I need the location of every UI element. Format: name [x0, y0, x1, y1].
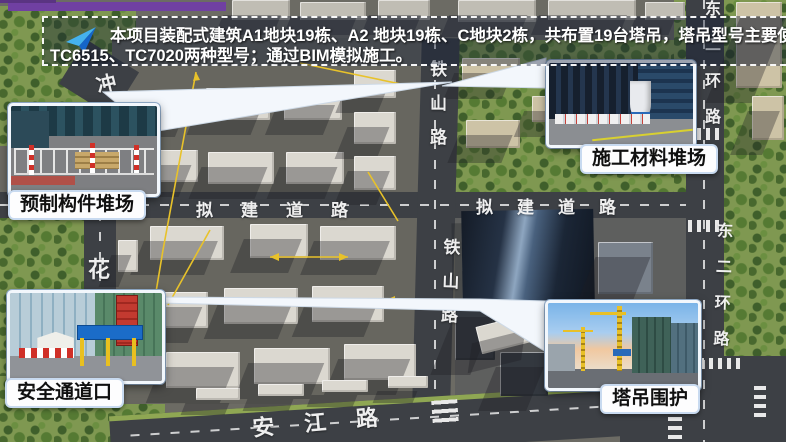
banner-text-line2: TC6515、TC7020两种型号；通过BIM模拟施工。 — [50, 42, 412, 66]
construction-site-overview: 铁山路 铁山路 拟建道路 拟建道路 东二环路 东二环路 花 冲 安江路 预制构件… — [0, 0, 786, 442]
steel-hall-building — [461, 209, 595, 303]
inset-material-stack — [75, 152, 119, 170]
road-name-proposed-west: 拟建道路 — [196, 196, 376, 221]
building-block — [320, 226, 396, 260]
inset-glass-building — [671, 323, 698, 372]
inset-canopy-leg — [80, 338, 84, 366]
building-block — [354, 70, 396, 98]
inset-striped-post — [90, 143, 95, 173]
inset-fence — [555, 114, 650, 125]
label-precast-yard: 预制构件堆场 — [8, 190, 146, 220]
inset-striped-post — [29, 145, 34, 175]
inset-glass-building — [632, 317, 671, 373]
inset-barrier — [19, 348, 74, 359]
crosswalk — [431, 399, 459, 425]
inset-precast-yard-photo — [8, 103, 160, 197]
inset-canopy-leg — [106, 338, 110, 366]
inset-canopy-leg — [132, 338, 136, 366]
inset-crane-mast — [617, 306, 622, 371]
building-block — [166, 352, 240, 388]
label-material-yard: 施工材料堆场 — [580, 144, 718, 174]
building-block — [224, 288, 298, 324]
purple-top-bar — [8, 2, 226, 11]
label-safety-gate: 安全通道口 — [5, 378, 124, 408]
building-block — [284, 90, 342, 120]
inset-crane-guard-photo — [545, 300, 701, 391]
building-block — [466, 120, 520, 148]
crosswalk — [754, 386, 766, 422]
purple-top-sliver — [0, 0, 56, 3]
building-block — [312, 286, 384, 322]
inset-red-walkway — [11, 176, 75, 185]
building-block — [254, 348, 330, 384]
inset-striped-post — [134, 145, 139, 173]
building-block — [208, 152, 274, 184]
building-block — [258, 384, 304, 396]
road-name-proposed-east: 拟建道路 — [476, 193, 640, 218]
building-block — [752, 96, 784, 140]
building-block — [118, 240, 138, 272]
road-name-tieshan-south: 铁山路 — [434, 238, 463, 341]
building-block — [354, 156, 396, 190]
road-name-tieshan-north: 铁山路 — [424, 60, 449, 162]
building-block — [250, 224, 308, 258]
inset-safety-gate-photo — [7, 290, 165, 384]
road-name-hua: 花 — [88, 252, 110, 284]
inset-material-yard-photo — [546, 60, 696, 148]
building-block — [354, 112, 396, 144]
inset-crane-jib — [590, 312, 626, 315]
building-block — [150, 226, 224, 260]
building-block — [344, 344, 416, 380]
building-block — [322, 380, 368, 392]
inset-building-left — [11, 111, 49, 148]
inset-crane-cab — [613, 349, 631, 356]
building-block — [388, 376, 428, 388]
building-block — [598, 242, 653, 294]
label-crane-guard: 塔吊围护 — [600, 384, 700, 414]
building-block — [206, 88, 270, 120]
title-banner: 本项目装配式建筑A1地块19栋、A2 地块19栋、C地块2栋，共布置19台塔吊，… — [42, 16, 786, 66]
inset-crane-mast — [581, 327, 585, 371]
road-name-ring-south: 东二环路 — [705, 222, 734, 367]
inset-crane-jib — [563, 330, 593, 332]
building-block — [196, 388, 240, 400]
inset-low-buildings — [548, 344, 575, 371]
